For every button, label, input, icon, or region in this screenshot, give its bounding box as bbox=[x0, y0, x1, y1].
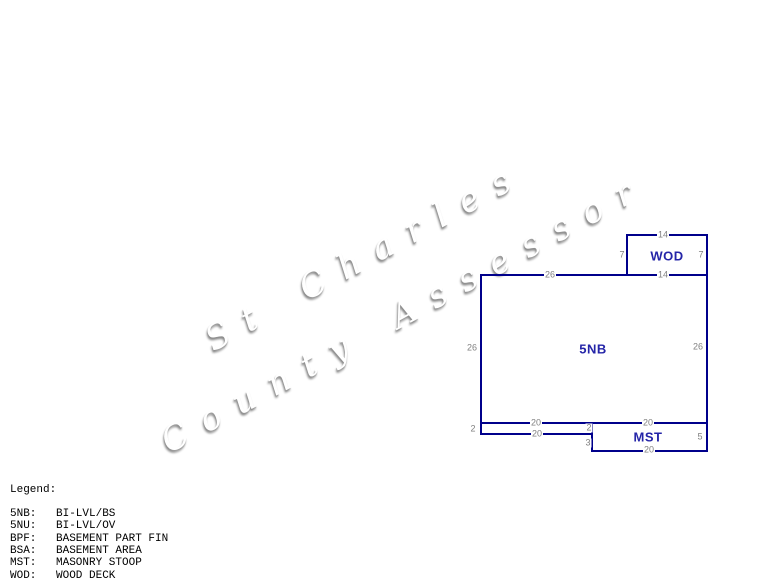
legend-entry: BPF:BASEMENT PART FIN bbox=[10, 533, 168, 545]
legend-entry-code: BSA: bbox=[10, 545, 56, 557]
dimension-label: 3 bbox=[584, 439, 591, 448]
masonry-stoop-label: MST bbox=[634, 430, 663, 445]
legend-entry-code: 5NB: bbox=[10, 508, 56, 520]
dimension-label: 26 bbox=[544, 271, 556, 280]
legend-entry-code: 5NU: bbox=[10, 520, 56, 532]
legend-entry-description: BASEMENT AREA bbox=[56, 545, 142, 557]
legend-title: Legend: bbox=[10, 484, 168, 496]
legend-entry-description: MASONRY STOOP bbox=[56, 557, 142, 569]
dimension-label: 7 bbox=[697, 251, 704, 260]
legend-entry-description: BI-LVL/BS bbox=[56, 508, 115, 520]
legend-entry-description: BASEMENT PART FIN bbox=[56, 533, 168, 545]
dimension-label: 20 bbox=[642, 419, 654, 428]
legend-entry-code: BPF: bbox=[10, 533, 56, 545]
legend-entry-code: MST: bbox=[10, 557, 56, 569]
dimension-label: 14 bbox=[657, 231, 669, 240]
dimension-label: 5 bbox=[696, 433, 703, 442]
dimension-label: 26 bbox=[692, 343, 704, 352]
dimension-label: 20 bbox=[530, 419, 542, 428]
legend-entry-description: WOOD DECK bbox=[56, 570, 115, 582]
legend: Legend: 5NB:BI-LVL/BS5NU:BI-LVL/OVBPF:BA… bbox=[10, 459, 168, 582]
dimension-label: 14 bbox=[657, 271, 669, 280]
dimension-label: 2 bbox=[585, 424, 592, 433]
main-bi-level-label: 5NB bbox=[579, 342, 607, 357]
legend-entry: MST:MASONRY STOOP bbox=[10, 557, 168, 569]
legend-entry: 5NU:BI-LVL/OV bbox=[10, 520, 168, 532]
dimension-label: 7 bbox=[618, 251, 625, 260]
legend-entry-description: BI-LVL/OV bbox=[56, 520, 115, 532]
dimension-label: 26 bbox=[466, 344, 478, 353]
legend-entry-code: WOD: bbox=[10, 570, 56, 582]
dimension-label: 20 bbox=[531, 430, 543, 439]
legend-entry: BSA:BASEMENT AREA bbox=[10, 545, 168, 557]
dimension-label: 20 bbox=[643, 446, 655, 455]
legend-entry: WOD:WOOD DECK bbox=[10, 570, 168, 582]
legend-entry: 5NB:BI-LVL/BS bbox=[10, 508, 168, 520]
wood-deck-label: WOD bbox=[650, 249, 683, 264]
dimension-label: 2 bbox=[469, 425, 476, 434]
